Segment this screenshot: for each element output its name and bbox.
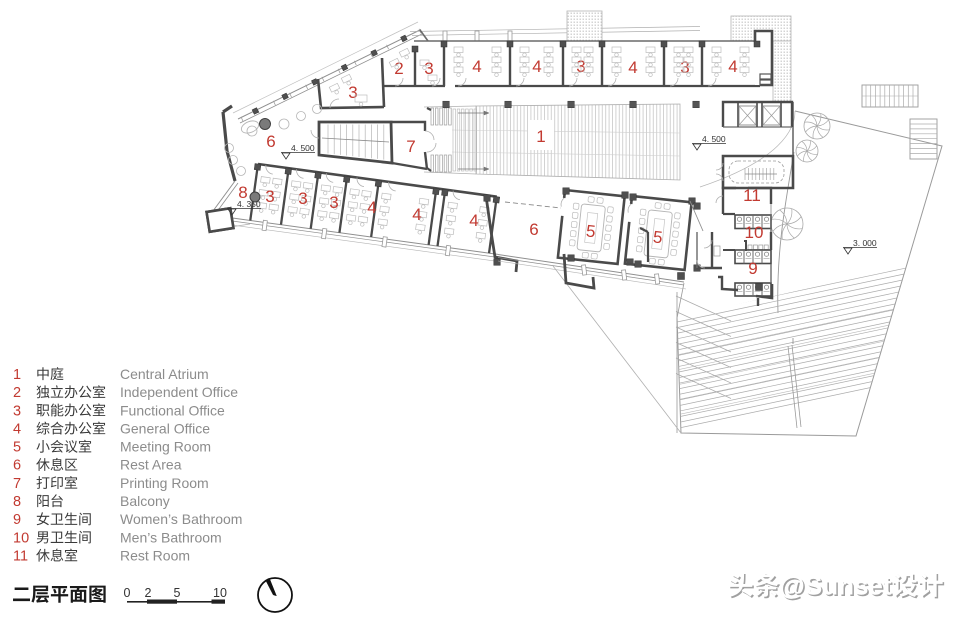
svg-text:4. 500: 4. 500	[702, 134, 726, 144]
svg-text:0: 0	[124, 586, 131, 600]
svg-text:3: 3	[680, 58, 689, 77]
svg-text:6: 6	[13, 458, 21, 474]
svg-text:4: 4	[13, 421, 21, 437]
svg-text:2: 2	[13, 385, 21, 401]
svg-text:General Office: General Office	[120, 420, 210, 436]
svg-text:Men’s Bathroom: Men’s Bathroom	[120, 529, 222, 545]
svg-text:5: 5	[13, 440, 21, 456]
svg-text:10: 10	[13, 530, 29, 546]
svg-text:@Sunset: @Sunset	[780, 571, 892, 601]
svg-text:Central Atrium: Central Atrium	[120, 366, 209, 382]
svg-text:6: 6	[529, 220, 538, 239]
svg-text:4: 4	[728, 57, 737, 76]
svg-text:3: 3	[265, 187, 274, 206]
svg-text:2: 2	[145, 586, 152, 600]
svg-text:4: 4	[469, 211, 478, 230]
svg-text:1: 1	[536, 127, 545, 146]
svg-text:1: 1	[13, 367, 21, 383]
svg-text:4: 4	[628, 58, 637, 77]
svg-text:Independent Office: Independent Office	[120, 384, 238, 400]
svg-text:5: 5	[652, 227, 663, 247]
svg-text:11: 11	[743, 186, 761, 205]
svg-text:10: 10	[213, 586, 227, 600]
svg-text:4: 4	[367, 198, 376, 217]
svg-text:9: 9	[748, 259, 757, 278]
svg-text:5: 5	[585, 221, 596, 241]
svg-text:3: 3	[348, 83, 357, 102]
svg-text:3. 000: 3. 000	[853, 238, 877, 248]
svg-text:4: 4	[532, 57, 541, 76]
svg-text:Printing Room: Printing Room	[120, 475, 209, 491]
svg-text:Meeting Room: Meeting Room	[120, 439, 211, 455]
svg-text:6: 6	[266, 132, 275, 151]
svg-text:7: 7	[406, 137, 415, 156]
svg-text:3: 3	[13, 403, 21, 419]
svg-text:10: 10	[745, 223, 764, 242]
svg-text:Rest Room: Rest Room	[120, 548, 190, 564]
svg-text:Women’s Bathroom: Women’s Bathroom	[120, 511, 242, 527]
svg-text:4. 500: 4. 500	[291, 143, 315, 153]
svg-text:Balcony: Balcony	[120, 493, 170, 509]
svg-text:8: 8	[13, 494, 21, 510]
svg-text:4: 4	[412, 205, 421, 224]
svg-text:3: 3	[298, 189, 307, 208]
svg-text:11: 11	[13, 549, 28, 565]
svg-text:4: 4	[472, 57, 481, 76]
svg-text:3: 3	[329, 193, 338, 212]
svg-text:9: 9	[13, 512, 21, 528]
svg-text:Rest Area: Rest Area	[120, 457, 182, 473]
svg-text:7: 7	[13, 476, 21, 492]
svg-text:Functional Office: Functional Office	[120, 402, 225, 418]
svg-text:5: 5	[174, 586, 181, 600]
